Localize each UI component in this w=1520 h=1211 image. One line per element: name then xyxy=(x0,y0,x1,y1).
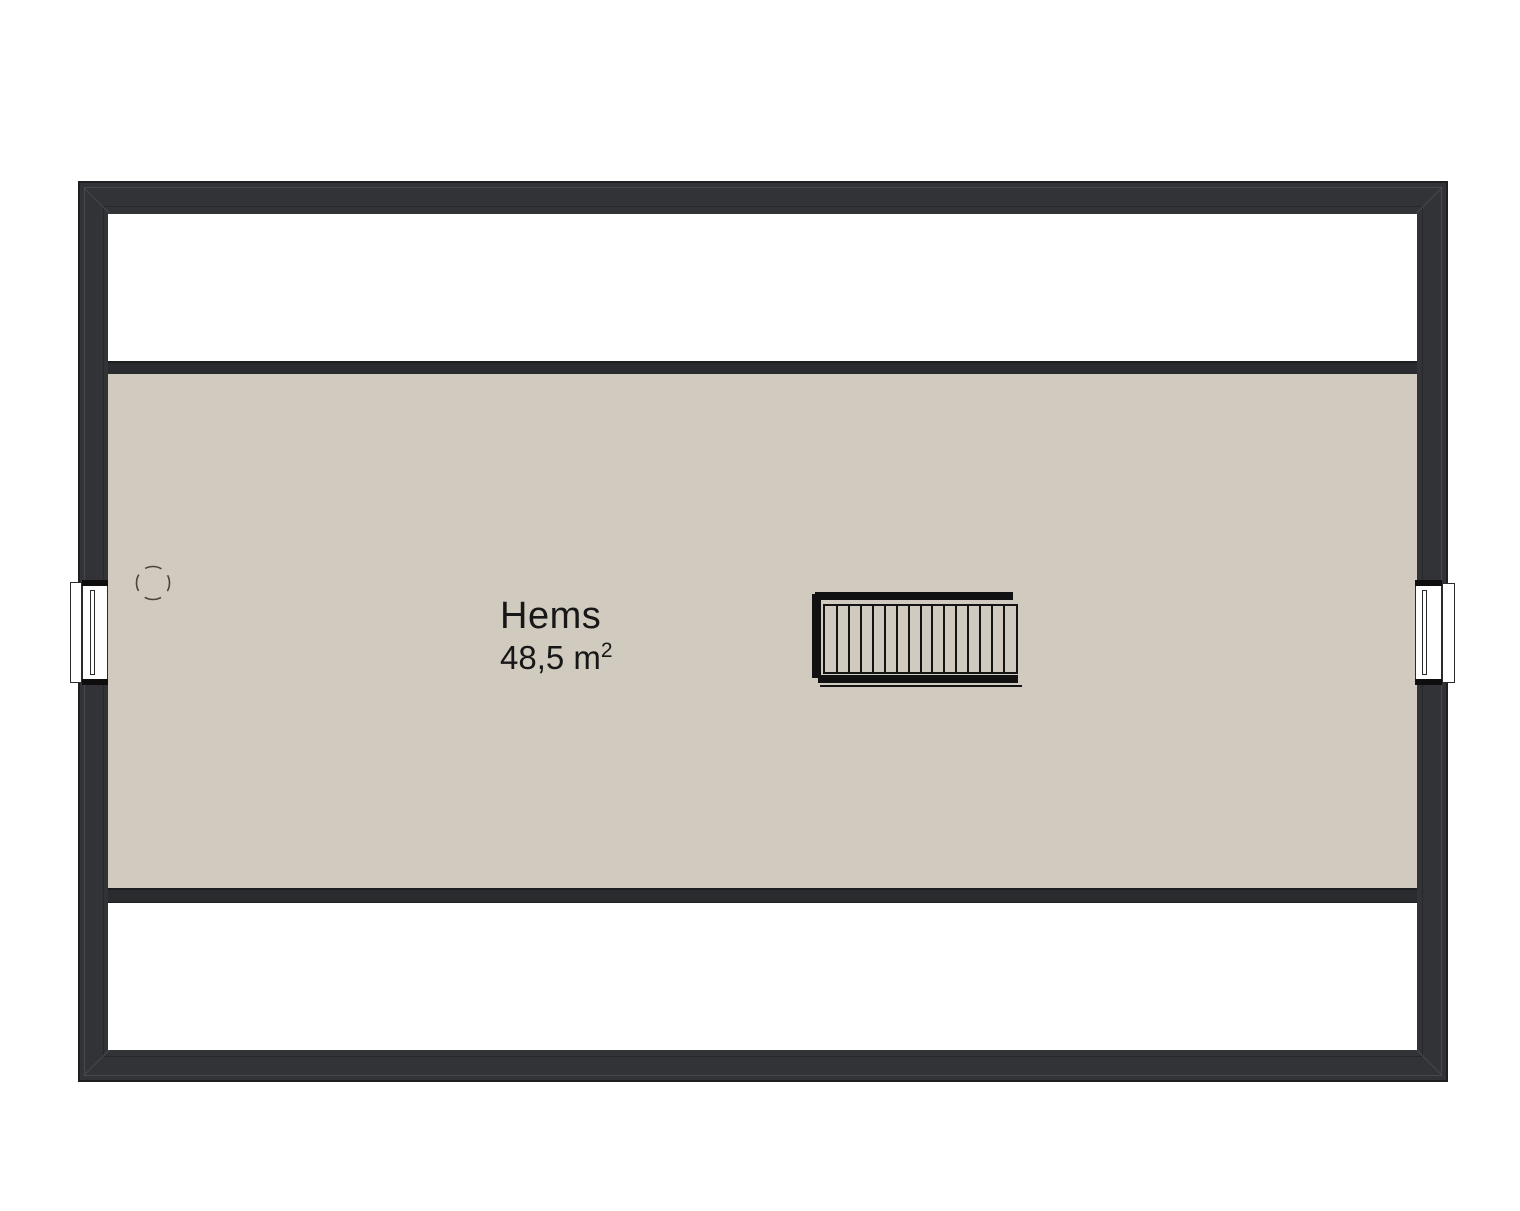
window-sill xyxy=(1442,583,1455,683)
stair-top-stringer xyxy=(815,592,1013,600)
stair-tread-line xyxy=(872,606,874,672)
window-jamb-bottom xyxy=(82,679,108,685)
window-glass-line xyxy=(90,590,95,675)
window-left-icon xyxy=(70,580,110,685)
stair-landing-edge xyxy=(812,594,821,678)
knee-wall-bottom xyxy=(108,888,1417,903)
room-label-block: Hems 48,5 m2 xyxy=(500,595,613,677)
knee-wall-top xyxy=(108,361,1417,374)
window-frame xyxy=(1415,580,1442,685)
floor-plan-canvas: Hems 48,5 m2 xyxy=(0,0,1520,1211)
wall-miter-line xyxy=(83,1049,110,1076)
window-sill xyxy=(70,582,82,683)
room-name-label: Hems xyxy=(500,595,613,637)
stair-tread-line xyxy=(860,606,862,672)
stair-bottom-stringer xyxy=(818,675,1018,683)
stair-tread-line xyxy=(908,606,910,672)
stair-tread-line xyxy=(979,606,981,672)
stair-tread-line xyxy=(920,606,922,672)
chimney-dashed-circle-icon xyxy=(133,563,173,603)
stair-tread-line xyxy=(884,606,886,672)
stair-treads xyxy=(823,604,1018,674)
room-area-label: 48,5 m2 xyxy=(500,639,613,677)
window-jamb-top xyxy=(82,580,108,586)
stair-tread-line xyxy=(991,606,993,672)
interior-area: Hems 48,5 m2 xyxy=(108,214,1417,1050)
staircase-symbol xyxy=(812,591,1024,691)
stair-tread-line xyxy=(955,606,957,672)
wall-miter-line xyxy=(1416,1049,1443,1076)
window-right-icon xyxy=(1415,580,1455,685)
window-frame xyxy=(82,580,108,685)
window-glass-line xyxy=(1422,590,1427,675)
room-area-exponent: 2 xyxy=(601,639,613,662)
building-outline: Hems 48,5 m2 xyxy=(78,181,1448,1082)
room-floor-hems xyxy=(108,374,1417,888)
wall-miter-line xyxy=(83,187,110,214)
window-jamb-top xyxy=(1415,580,1442,586)
stair-tread-line xyxy=(967,606,969,672)
stair-tread-line xyxy=(1003,606,1005,672)
window-jamb-bottom xyxy=(1415,679,1442,685)
stair-tread-line xyxy=(836,606,838,672)
room-area-value: 48,5 m xyxy=(500,639,601,676)
stair-base-line xyxy=(820,685,1022,687)
wall-miter-line xyxy=(1416,187,1443,214)
stair-tread-line xyxy=(848,606,850,672)
stair-tread-line xyxy=(931,606,933,672)
stair-tread-line xyxy=(943,606,945,672)
stair-tread-line xyxy=(896,606,898,672)
